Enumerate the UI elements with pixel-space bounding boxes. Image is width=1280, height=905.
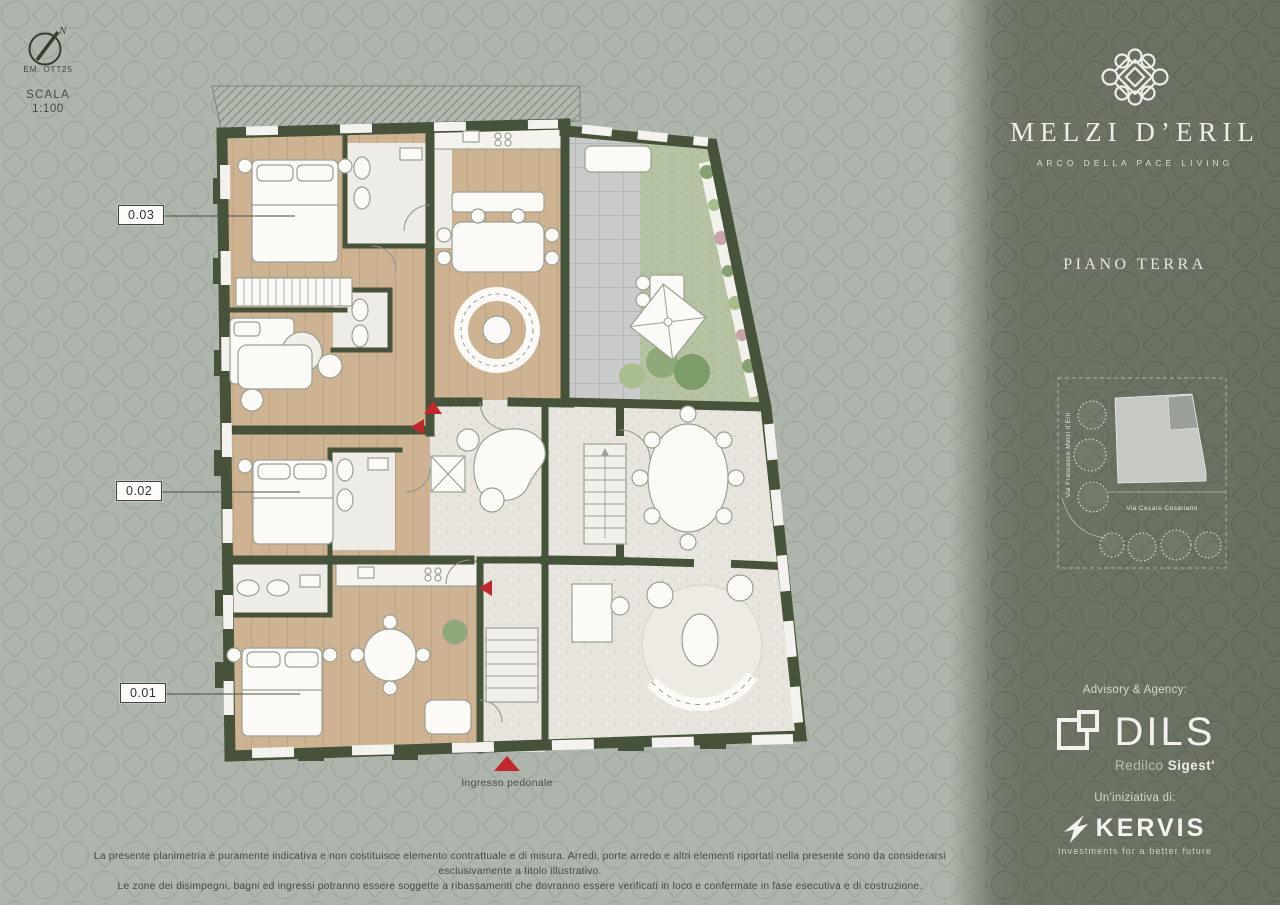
lobby-pouf [480, 488, 504, 512]
building-plan [160, 123, 801, 771]
stairs-main [584, 444, 626, 544]
right-panel: MELZI D’ERIL ARCO DELLA PACE LIVING PIAN… [990, 0, 1280, 905]
kervis-logo: KERVIS [990, 814, 1280, 843]
scale-label: SCALA [5, 89, 91, 101]
compass-north-label: N [58, 25, 67, 37]
scale-value: 1:100 [5, 103, 91, 115]
bed-master-003 [238, 159, 352, 262]
unit-label-003: 0.03 [118, 205, 164, 225]
kervis-icon [1064, 815, 1088, 843]
wardrobe-003 [236, 278, 352, 306]
kervis-tagline: Investments for a better future [990, 846, 1280, 856]
initiative-label: Un'iniziativa di: [990, 792, 1280, 804]
stairs-entrance [486, 628, 538, 702]
disclaimer: La presente planimetria è puramente indi… [60, 849, 980, 894]
island-003 [452, 192, 544, 212]
brand-tagline: ARCO DELLA PACE LIVING [990, 158, 1280, 168]
page: N Via Francesco Melzi d’Eril Via Cesare … [0, 0, 1280, 905]
emission-label: EM. OTT25 [5, 64, 91, 74]
elevator [431, 456, 465, 492]
dils-logo: DILS [990, 708, 1280, 756]
sigest-label: Sigest' [1168, 758, 1215, 773]
armchair-003 [241, 389, 263, 411]
pedestrian-entrance-label: Ingresso pedonale [440, 777, 574, 789]
unit-label-001: 0.01 [120, 683, 166, 703]
sofa-001 [425, 700, 471, 734]
brand-name: MELZI D’ERIL [990, 117, 1280, 148]
disclaimer-line-2: Le zone dei disimpegni, bagni ed ingress… [60, 879, 980, 894]
advisory-label: Advisory & Agency: [990, 684, 1280, 696]
unit-label-002: 0.02 [116, 481, 162, 501]
dils-icon [1055, 708, 1103, 756]
sofa-002 [238, 345, 312, 389]
redilco-label: Redilco [1115, 758, 1164, 773]
terrace-sofa [585, 146, 651, 172]
floor-title: PIANO TERRA [990, 256, 1280, 274]
bed-001 [227, 648, 337, 736]
dils-name: DILS [1115, 710, 1216, 755]
dils-subbrands: Redilco Sigest' [1020, 758, 1280, 773]
disclaimer-line-1: La presente planimetria è puramente indi… [60, 849, 980, 879]
kervis-name: KERVIS [1096, 814, 1207, 843]
